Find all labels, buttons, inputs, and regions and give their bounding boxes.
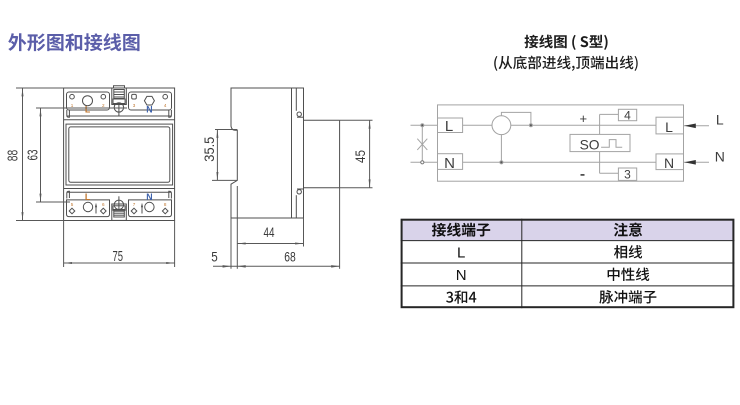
svg-text:4: 4 — [164, 103, 167, 108]
svg-text:4: 4 — [624, 108, 631, 122]
svg-text:44: 44 — [264, 225, 275, 240]
svg-text:L: L — [716, 112, 724, 128]
svg-text:N: N — [715, 149, 725, 165]
svg-text:L: L — [445, 118, 453, 135]
svg-text:N: N — [444, 155, 455, 172]
svg-text:6: 6 — [102, 202, 105, 207]
svg-text:3: 3 — [624, 168, 631, 182]
svg-text:N: N — [456, 267, 467, 284]
svg-text:35.5: 35.5 — [202, 137, 217, 162]
svg-text:N: N — [146, 192, 152, 202]
svg-text:SO: SO — [580, 137, 600, 152]
svg-text:7: 7 — [133, 202, 136, 207]
svg-text:L: L — [457, 245, 465, 262]
svg-text:L: L — [85, 105, 91, 115]
svg-text:N: N — [146, 105, 152, 115]
svg-text:75: 75 — [113, 248, 124, 265]
svg-text:1: 1 — [71, 103, 74, 108]
svg-text:L: L — [85, 192, 91, 202]
svg-text:63: 63 — [24, 150, 41, 161]
svg-text:+: + — [580, 111, 588, 126]
svg-text:2: 2 — [102, 103, 105, 108]
svg-text:88: 88 — [4, 150, 21, 162]
svg-text:3: 3 — [133, 103, 136, 108]
svg-text:68: 68 — [284, 248, 296, 264]
svg-text:N: N — [664, 155, 674, 171]
svg-text:L: L — [665, 119, 673, 135]
svg-text:5: 5 — [211, 249, 218, 265]
svg-text:8: 8 — [164, 202, 167, 207]
svg-text:5: 5 — [71, 202, 74, 207]
svg-text:45: 45 — [353, 150, 368, 163]
